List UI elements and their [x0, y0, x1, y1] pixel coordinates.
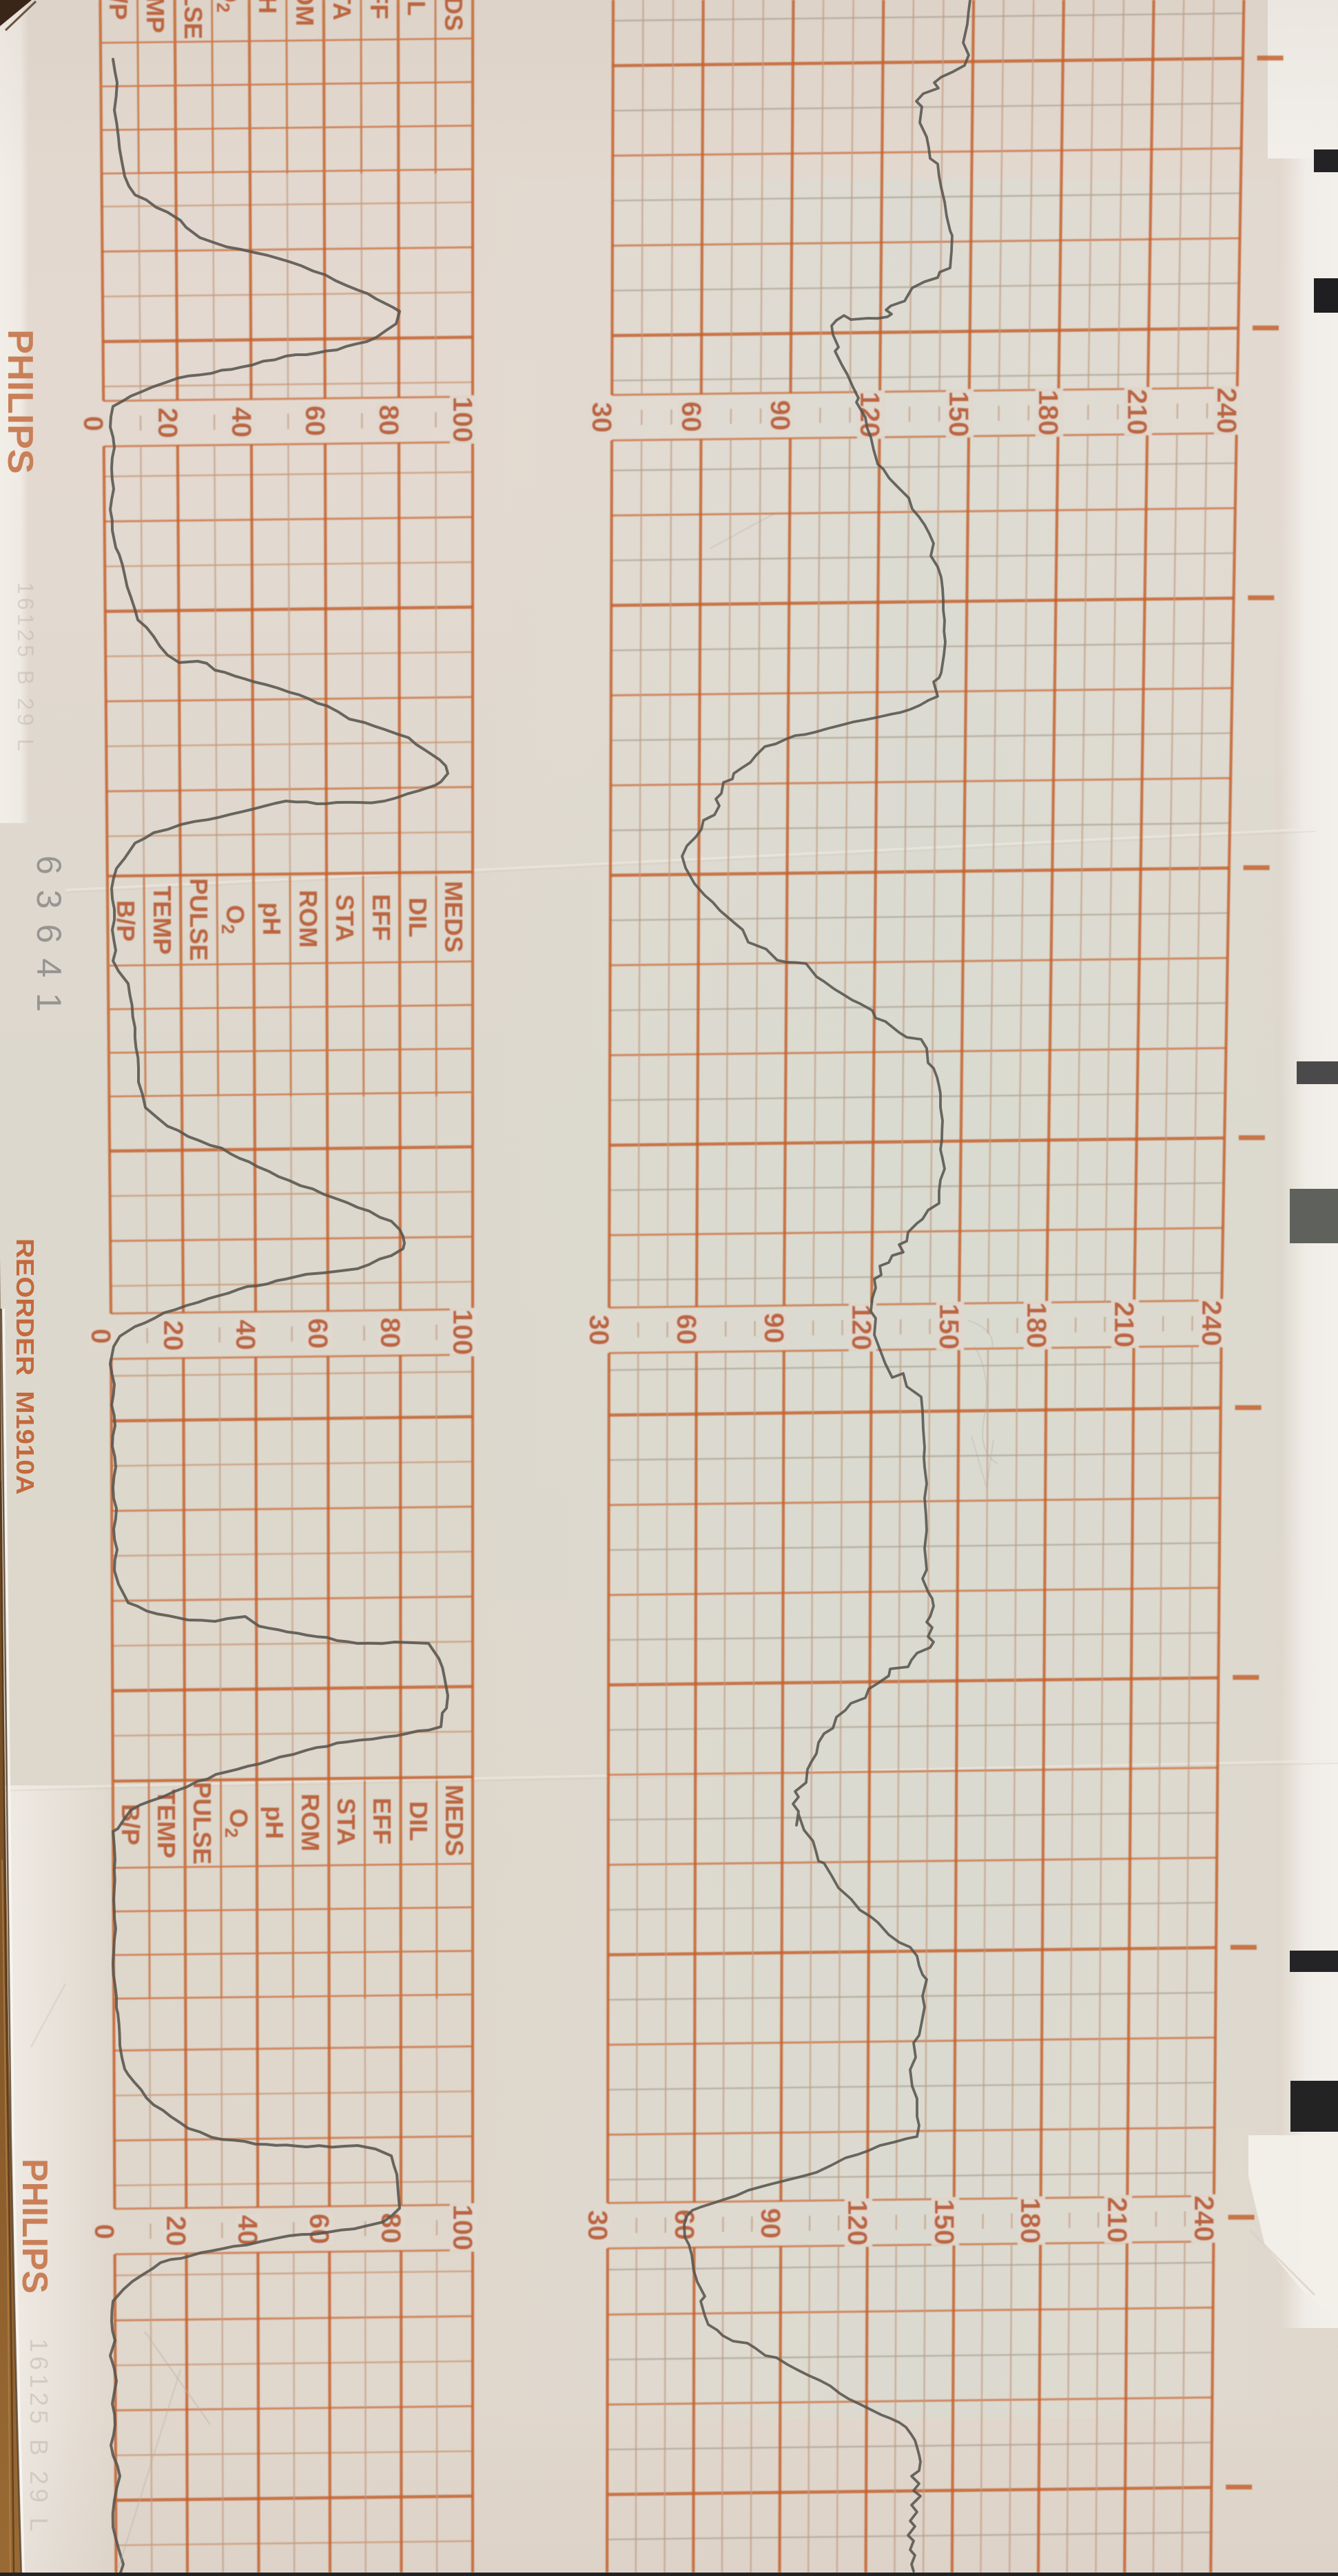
- svg-text:PHILIPS: PHILIPS: [0, 329, 40, 474]
- svg-text:180: 180: [1033, 390, 1063, 436]
- svg-text:MEDS: MEDS: [440, 881, 468, 953]
- svg-text:B/P: B/P: [112, 900, 140, 942]
- svg-text:100: 100: [447, 397, 477, 443]
- svg-text:60: 60: [671, 1314, 701, 1345]
- svg-text:30: 30: [586, 402, 617, 433]
- svg-text:pH: pH: [258, 902, 286, 935]
- svg-text:MEDS: MEDS: [440, 0, 468, 31]
- svg-text:DIL: DIL: [404, 1801, 433, 1841]
- svg-text:90: 90: [759, 1313, 789, 1344]
- svg-text:TEMP: TEMP: [141, 0, 169, 33]
- svg-text:150: 150: [934, 1304, 964, 1350]
- svg-text:PULSE: PULSE: [188, 1782, 216, 1865]
- svg-text:60: 60: [300, 406, 330, 437]
- svg-text:100: 100: [447, 1309, 477, 1355]
- svg-text:40: 40: [226, 407, 256, 438]
- svg-text:STA: STA: [328, 0, 356, 21]
- svg-text:PHILIPS: PHILIPS: [14, 2159, 54, 2294]
- svg-text:PULSE: PULSE: [185, 878, 213, 961]
- svg-text:60: 60: [676, 402, 706, 433]
- svg-text:240: 240: [1196, 1300, 1226, 1347]
- svg-text:210: 210: [1122, 389, 1152, 435]
- svg-text:180: 180: [1015, 2198, 1045, 2244]
- svg-text:20: 20: [158, 1320, 188, 1351]
- svg-text:180: 180: [1021, 1302, 1051, 1349]
- svg-text:40: 40: [230, 1320, 260, 1351]
- svg-text:80: 80: [375, 1318, 405, 1349]
- svg-text:63641: 63641: [30, 855, 68, 1027]
- svg-text:0: 0: [85, 1329, 116, 1344]
- svg-text:90: 90: [755, 2208, 785, 2239]
- svg-text:PULSE: PULSE: [179, 0, 207, 39]
- svg-text:240: 240: [1211, 388, 1242, 434]
- svg-text:30: 30: [582, 2210, 613, 2241]
- svg-text:ROM: ROM: [294, 890, 322, 948]
- svg-text:DIL: DIL: [404, 897, 432, 937]
- svg-text:90: 90: [765, 400, 795, 431]
- svg-text:30: 30: [584, 1315, 614, 1346]
- svg-text:210: 210: [1102, 2197, 1132, 2243]
- svg-text:EFF: EFF: [367, 894, 395, 941]
- svg-text:20: 20: [152, 408, 183, 439]
- svg-text:STA: STA: [331, 894, 359, 942]
- svg-text:pH: pH: [254, 0, 282, 14]
- svg-text:MEDS: MEDS: [440, 1785, 469, 1856]
- svg-text:ROM: ROM: [291, 0, 319, 26]
- svg-text:ROM: ROM: [296, 1794, 325, 1851]
- svg-text:0: 0: [78, 416, 108, 431]
- svg-text:STA: STA: [332, 1798, 360, 1845]
- svg-text:120: 120: [842, 2200, 872, 2246]
- svg-text:60: 60: [302, 1318, 333, 1349]
- svg-text:0: 0: [89, 2224, 119, 2239]
- svg-text:EFF: EFF: [368, 1798, 396, 1845]
- svg-text:240: 240: [1188, 2196, 1219, 2242]
- svg-text:EFF: EFF: [365, 0, 393, 19]
- svg-text:20: 20: [161, 2216, 191, 2247]
- svg-text:TEMP: TEMP: [148, 886, 176, 955]
- svg-text:100: 100: [447, 2205, 477, 2251]
- svg-text:DIL: DIL: [402, 0, 431, 16]
- svg-text:210: 210: [1109, 1302, 1139, 1348]
- svg-text:150: 150: [929, 2199, 959, 2245]
- svg-text:REORDER M1910A: REORDER M1910A: [11, 1238, 39, 1495]
- svg-text:150: 150: [943, 391, 974, 437]
- svg-text:pH: pH: [260, 1806, 289, 1839]
- svg-text:B/P: B/P: [104, 0, 132, 20]
- svg-text:16125 B 29 L: 16125 B 29 L: [25, 2338, 53, 2535]
- svg-text:16125 B 29 L: 16125 B 29 L: [13, 582, 38, 754]
- svg-text:60: 60: [304, 2214, 334, 2245]
- svg-text:80: 80: [373, 405, 404, 436]
